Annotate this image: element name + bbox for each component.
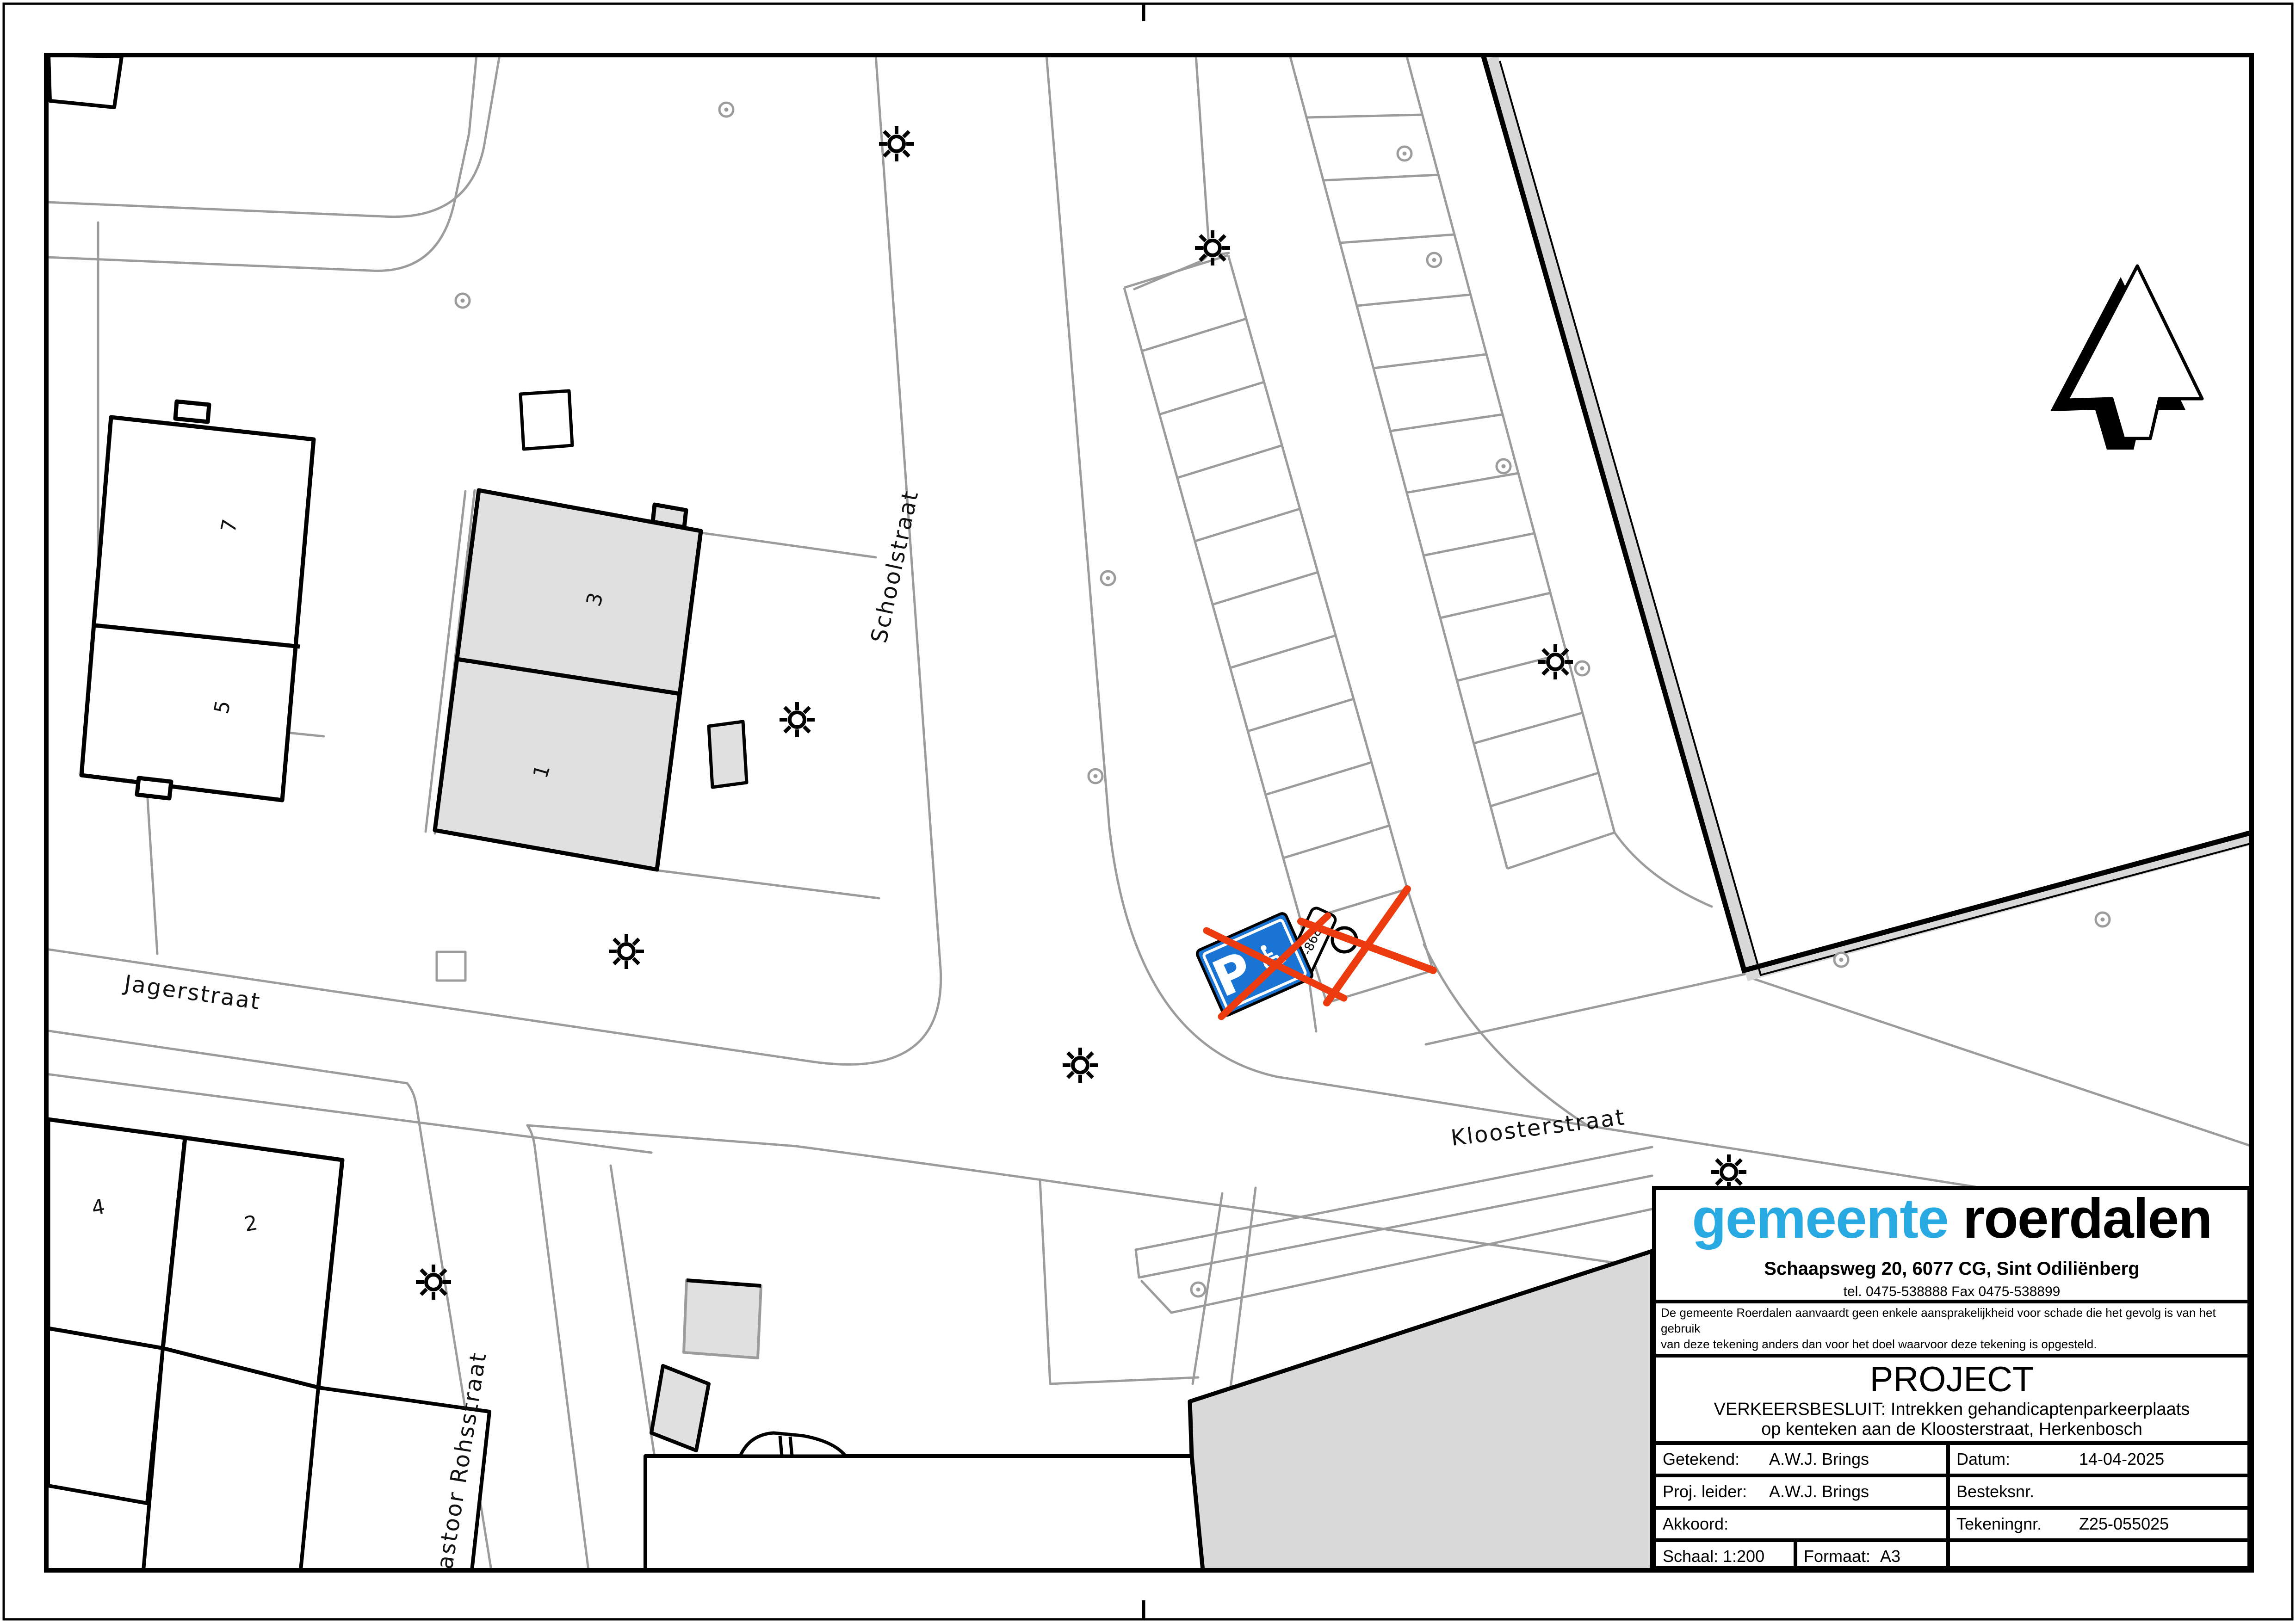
schaal-cell: Schaal: 1:200 [1656, 1542, 1794, 1571]
logo-text-roerdalen: roerdalen [1948, 1187, 2212, 1250]
row-projleider-besteksnr: Proj. leider: A.W.J. Brings Besteksnr. [1656, 1474, 2247, 1506]
project-section: PROJECT VERKEERSBESLUIT: Intrekken gehan… [1656, 1358, 2247, 1441]
getekend-cell: Getekend: A.W.J. Brings [1656, 1445, 1946, 1474]
project-description-line-1: VERKEERSBESLUIT: Intrekken gehandicapten… [1714, 1400, 2190, 1419]
building-7-5 [81, 401, 314, 800]
disclaimer-line-2: van deze tekening anders dan voor het do… [1661, 1337, 2243, 1352]
formaat-value: A3 [1880, 1547, 1900, 1566]
tree-icon [1089, 769, 1102, 783]
phone-fax-line: tel. 0475-538888 Fax 0475-538899 [1844, 1284, 2061, 1300]
tree-icon [2096, 913, 2110, 926]
tekeningnr-label: Tekeningnr. [1956, 1514, 2079, 1534]
logo-text-gemeente: gemeente [1692, 1187, 1948, 1250]
tree-icon [456, 294, 470, 308]
tree-icon [1398, 147, 1411, 160]
building-3-1 [435, 490, 701, 870]
project-heading: PROJECT [1870, 1359, 2034, 1400]
akkoord-label: Akkoord: [1663, 1514, 1769, 1534]
formaat-cell: Formaat: A3 [1794, 1542, 1946, 1571]
street-light-icon [416, 1265, 451, 1300]
building-topleft-clipped [49, 55, 122, 107]
title-block-header: gemeente roerdalen Schaapsweg 20, 6077 C… [1656, 1190, 2247, 1300]
schaal-label: Schaal: [1663, 1547, 1723, 1566]
akkoord-cell: Akkoord: [1656, 1510, 1946, 1538]
tekeningnr-value: Z25-055025 [2079, 1514, 2169, 1534]
getekend-value: A.W.J. Brings [1769, 1450, 1869, 1469]
tekeningnr-cell: Tekeningnr. Z25-055025 [1946, 1510, 2247, 1538]
tree-icon [1427, 253, 1441, 267]
drawing-page: 7 5 3 1 4 2 Schoolstraat Jagerstraat Klo… [0, 0, 2296, 1623]
besteksnr-cell: Besteksnr. [1946, 1477, 2247, 1506]
street-light-icon [1063, 1048, 1098, 1083]
street-light-icon [1711, 1154, 1746, 1190]
tree-icon [1834, 953, 1848, 967]
proj-leider-cell: Proj. leider: A.W.J. Brings [1656, 1477, 1946, 1506]
row-schaal-formaat: Schaal: 1:200 Formaat: A3 [1656, 1538, 2247, 1571]
schaal-value: 1:200 [1723, 1547, 1764, 1566]
outbuilding-gray [709, 722, 747, 787]
disclaimer-line-1: De gemeente Roerdalen aanvaardt geen enk… [1661, 1305, 2243, 1337]
street-light-icon [780, 702, 815, 737]
project-description-line-2: op kenteken aan de Kloosterstraat, Herke… [1761, 1419, 2142, 1439]
tree-icon [719, 103, 733, 117]
tree-icon [1497, 459, 1510, 473]
gemeente-roerdalen-logo: gemeente roerdalen [1692, 1190, 2211, 1247]
tree-icon [1191, 1283, 1205, 1296]
datum-label: Datum: [1956, 1450, 2079, 1469]
garage-white [520, 391, 572, 449]
street-light-icon [1195, 230, 1230, 265]
street-light-icon [609, 934, 644, 969]
proj-leider-label: Proj. leider: [1663, 1482, 1769, 1501]
row-getekend-datum: Getekend: A.W.J. Brings Datum: 14-04-202… [1656, 1441, 2247, 1474]
besteksnr-label: Besteksnr. [1956, 1482, 2079, 1501]
datum-value: 14-04-2025 [2079, 1450, 2164, 1469]
row-akkoord-tekeningnr: Akkoord: Tekeningnr. Z25-055025 [1656, 1506, 2247, 1538]
tree-icon [1101, 571, 1115, 585]
title-block: gemeente roerdalen Schaapsweg 20, 6077 C… [1652, 1186, 2252, 1570]
address-line: Schaapsweg 20, 6077 CG, Sint Odiliënberg [1764, 1259, 2139, 1279]
street-light-icon [879, 126, 914, 161]
tree-icon [1575, 661, 1589, 675]
datum-cell: Datum: 14-04-2025 [1946, 1445, 2247, 1474]
proj-leider-value: A.W.J. Brings [1769, 1482, 1869, 1501]
empty-cell [1946, 1542, 2247, 1571]
formaat-label: Formaat: [1804, 1547, 1880, 1566]
getekend-label: Getekend: [1663, 1450, 1769, 1469]
street-light-icon [1538, 644, 1573, 679]
disclaimer: De gemeente Roerdalen aanvaardt geen enk… [1656, 1300, 2247, 1358]
